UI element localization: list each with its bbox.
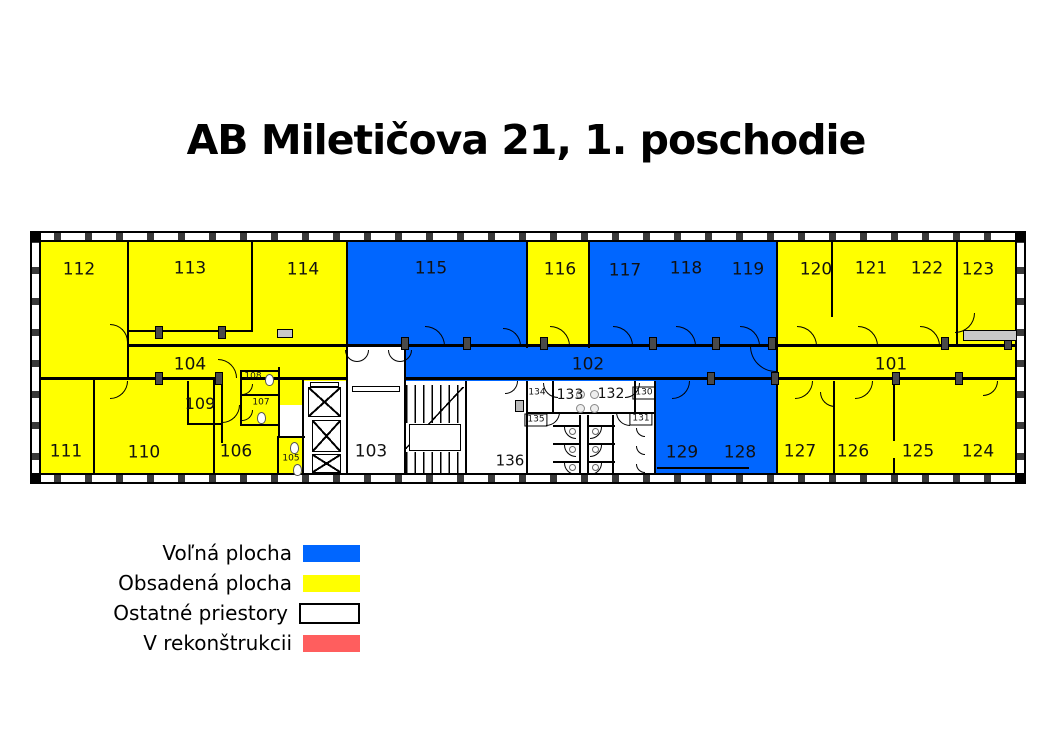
- toilet-icon: [293, 464, 302, 476]
- outer-wall-left: [30, 231, 41, 484]
- wall: [657, 467, 749, 469]
- wall: [346, 242, 348, 348]
- room-label-102: 102: [572, 357, 604, 374]
- wall: [278, 436, 305, 438]
- outer-wall-bottom: [30, 473, 1026, 484]
- sink-icon: [576, 404, 585, 413]
- legend-item-reconstruction: V rekonštrukcii: [60, 628, 360, 658]
- room-label-108: 108: [244, 373, 261, 382]
- legend-swatch-reconstruction: [303, 635, 360, 652]
- room-label-118: 118: [670, 261, 702, 278]
- wall: [526, 242, 528, 348]
- room-label-121: 121: [855, 261, 887, 278]
- wall: [187, 423, 223, 425]
- wall: [41, 377, 223, 380]
- lobby-threshold: [352, 386, 400, 392]
- legend: Voľná plocha Obsadená plocha Ostatné pri…: [60, 538, 360, 658]
- wall: [831, 242, 833, 317]
- wall: [278, 367, 280, 437]
- room-label-122: 122: [911, 261, 943, 278]
- room-label-109: 109: [185, 396, 216, 412]
- room-label-104: 104: [174, 357, 206, 374]
- room-label-133: 133: [557, 388, 584, 402]
- room-label-129: 129: [666, 445, 698, 462]
- wall: [240, 424, 280, 426]
- room-label-135: 135: [524, 414, 547, 427]
- wall: [776, 242, 778, 383]
- wall: [240, 394, 280, 396]
- outer-wall-corner-3: [30, 473, 41, 484]
- doorframe-post: [155, 326, 163, 339]
- wall: [404, 346, 406, 473]
- wall: [127, 242, 129, 379]
- legend-label-occupied: Obsadená plocha: [118, 568, 292, 598]
- wall: [93, 379, 95, 473]
- room-label-112: 112: [63, 262, 95, 279]
- room-label-128: 128: [724, 445, 756, 462]
- page: AB Miletičova 21, 1. poschodie 112113114…: [0, 0, 1052, 743]
- legend-label-other: Ostatné priestory: [113, 598, 288, 628]
- room-label-126: 126: [837, 444, 869, 461]
- elevator-shaft-2: [312, 420, 341, 452]
- legend-item-free: Voľná plocha: [60, 538, 360, 568]
- room-label-106: 106: [220, 444, 252, 461]
- outer-wall-corner-2: [1015, 231, 1026, 242]
- room-label-132: 132: [598, 387, 625, 401]
- outer-wall-corner-4: [1015, 473, 1026, 484]
- room-label-111: 111: [50, 444, 82, 461]
- elevator-vent: [310, 382, 339, 387]
- room-label-107: 107: [252, 399, 269, 408]
- room-label-124: 124: [962, 444, 994, 461]
- legend-item-occupied: Obsadená plocha: [60, 568, 360, 598]
- doorframe-post: [941, 337, 949, 350]
- room-label-103: 103: [355, 444, 387, 461]
- wall: [893, 381, 895, 441]
- doorframe-post: [401, 337, 409, 350]
- room-label-110: 110: [128, 445, 160, 462]
- room-label-115: 115: [415, 261, 447, 278]
- room-label-105: 105: [282, 455, 299, 464]
- region-vestibule-105: [278, 405, 303, 436]
- sink-icon: [590, 404, 599, 413]
- room-label-130: 130: [632, 387, 655, 400]
- legend-label-reconstruction: V rekonštrukcii: [143, 628, 292, 658]
- wall: [588, 242, 590, 348]
- outer-wall-right: [1015, 231, 1026, 484]
- room-label-119: 119: [732, 262, 764, 279]
- legend-swatch-occupied: [303, 575, 360, 592]
- doorframe-post: [707, 372, 715, 385]
- doorframe-post: [955, 372, 963, 385]
- outer-wall-corner-1: [30, 231, 41, 242]
- doorframe-post: [155, 372, 163, 385]
- room-label-101: 101: [875, 357, 907, 374]
- legend-swatch-other: [299, 603, 360, 624]
- room-label-116: 116: [544, 262, 576, 279]
- wall: [346, 346, 348, 473]
- room-label-127: 127: [784, 444, 816, 461]
- elevator-shaft-1: [308, 387, 341, 417]
- wall: [465, 381, 467, 473]
- room-label-120: 120: [800, 262, 832, 279]
- outer-wall-top: [30, 231, 1026, 242]
- service-shaft: [515, 400, 524, 412]
- doorframe-post: [712, 337, 720, 350]
- toilet-icon: [290, 442, 299, 454]
- doorframe-post: [218, 326, 226, 339]
- room-label-113: 113: [174, 261, 206, 278]
- wall: [251, 242, 253, 332]
- legend-swatch-free: [303, 545, 360, 562]
- elevator-shaft-3: [312, 454, 341, 473]
- wall: [302, 379, 304, 473]
- doorframe-post: [649, 337, 657, 350]
- stairs-landing: [409, 424, 461, 451]
- room-label-117: 117: [609, 263, 641, 280]
- legend-item-other: Ostatné priestory: [60, 598, 360, 628]
- legend-label-free: Voľná plocha: [162, 538, 292, 568]
- room-label-125: 125: [902, 444, 934, 461]
- wall: [127, 344, 1016, 347]
- wall: [776, 381, 778, 473]
- room-label-114: 114: [287, 262, 319, 279]
- room-label-136: 136: [496, 454, 525, 469]
- stairs-flight-2: [406, 452, 464, 473]
- room-label-131: 131: [629, 413, 652, 426]
- room-label-123: 123: [962, 262, 994, 279]
- wall: [893, 458, 895, 473]
- radiator: [963, 330, 1017, 341]
- doorframe-post: [463, 337, 471, 350]
- wall: [277, 436, 279, 473]
- room-label-134: 134: [528, 389, 545, 398]
- toilet-icon: [265, 374, 274, 386]
- doorframe-post: [771, 372, 779, 385]
- toilet-icon: [257, 412, 266, 424]
- wall: [127, 330, 253, 332]
- doorframe-post: [540, 337, 548, 350]
- radiator: [277, 329, 293, 338]
